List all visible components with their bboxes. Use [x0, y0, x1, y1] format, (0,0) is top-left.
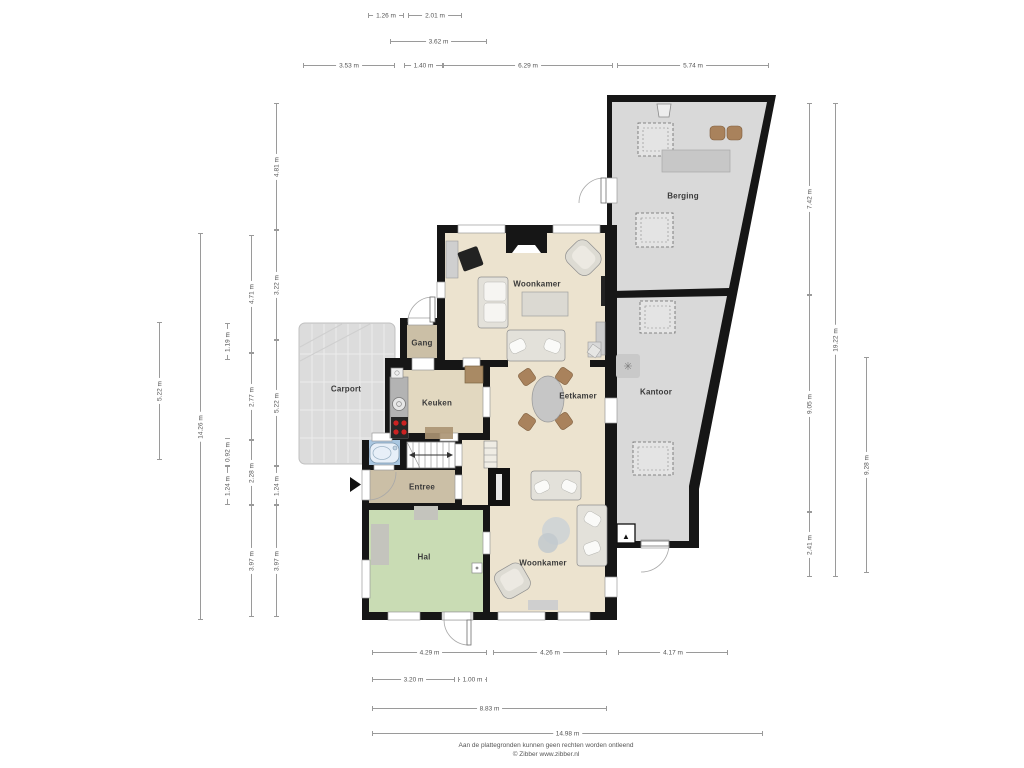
room-label-eetkamer: Eetkamer [559, 392, 597, 401]
dimension-label: 3.53 m [336, 62, 362, 69]
door-leaf [430, 297, 435, 322]
dimension-line: 1.19 m [227, 323, 228, 360]
room-label-carport: Carport [331, 385, 361, 394]
svg-text:✳: ✳ [623, 361, 632, 373]
disclaimer-footer: Aan de plattegronden kunnen geen rechten… [290, 741, 802, 759]
dimension-label: 14.98 m [553, 730, 583, 737]
staircase [407, 442, 455, 468]
dimension-label: 2.01 m [422, 12, 448, 19]
room-label-woonkamer: Woonkamer [513, 280, 560, 289]
door-gap [408, 318, 433, 325]
dimension-label: 5.22 m [273, 390, 280, 416]
dimension-line: 0.92 m [227, 438, 228, 466]
dimension-line: 3.20 m [372, 679, 455, 680]
dimension-label: 3.97 m [248, 548, 255, 574]
dimension-line: 2.77 m [251, 353, 252, 440]
door-gap [362, 470, 370, 500]
window [437, 282, 445, 298]
stove-icon [391, 417, 408, 438]
dimension-line: 2.41 m [809, 512, 810, 577]
dimension-line: 1.40 m [404, 65, 443, 66]
opening [483, 387, 490, 417]
dimension-line: 19.22 m [835, 103, 836, 577]
room-label-gang: Gang [411, 339, 432, 348]
dimension-label: 7.42 m [806, 186, 813, 212]
dimension-label: 5.74 m [680, 62, 706, 69]
dimension-label: 2.41 m [806, 532, 813, 558]
room-label-entree: Entree [409, 483, 435, 492]
dimension-line: 14.98 m [372, 733, 763, 734]
appliance-icon [391, 368, 403, 378]
dimension-label: 6.29 m [515, 62, 541, 69]
dimension-line: 6.29 m [443, 65, 613, 66]
dimension-line: 7.42 m [809, 103, 810, 295]
dimension-line: 4.81 m [276, 103, 277, 230]
dimension-label: 1.00 m [460, 676, 486, 683]
dimension-label: 8.83 m [477, 705, 503, 712]
dimension-label: 19.22 m [832, 325, 839, 355]
dimension-line: 8.83 m [372, 708, 607, 709]
dimension-line: 3.22 m [276, 230, 277, 340]
bucket-icon [657, 104, 671, 117]
opening [412, 358, 434, 370]
opening [374, 465, 394, 470]
dimension-label: 14.26 m [197, 412, 204, 442]
window [553, 225, 600, 233]
window [362, 560, 370, 598]
opening [455, 475, 462, 499]
dimension-line: 1.24 m [276, 466, 277, 505]
door-leaf [601, 178, 606, 203]
dimension-label: 4.26 m [537, 649, 563, 656]
floorplan-page: ✳ ▲ BergingWoonkamerGangCarportKeukenEet… [0, 0, 1024, 768]
window [605, 577, 617, 597]
dimension-line: 2.28 m [251, 440, 252, 505]
dimension-line: 5.74 m [617, 65, 769, 66]
room-label-berging: Berging [667, 192, 699, 201]
room-label-kantoor: Kantoor [640, 388, 672, 397]
dimension-label: 0.92 m [224, 439, 231, 465]
dimension-label: 1.19 m [224, 329, 231, 355]
dimension-label: 9.28 m [863, 452, 870, 478]
door-arc [444, 620, 469, 645]
door-leaf [641, 541, 669, 546]
credit-line: © Zibber www.zibber.nl [290, 750, 802, 759]
dimension-line: 3.62 m [390, 41, 487, 42]
dimension-line: 4.71 m [251, 235, 252, 353]
dimension-line: 4.29 m [372, 652, 487, 653]
sink-icon [393, 398, 406, 411]
room-label-hal: Hal [417, 553, 430, 562]
kitchen-mat [425, 427, 453, 439]
dimension-label: 2.28 m [248, 460, 255, 486]
window [605, 398, 617, 423]
dimension-label: 5.22 m [156, 378, 163, 404]
disclaimer-line: Aan de plattegronden kunnen geen rechten… [290, 741, 802, 750]
bathtub [370, 443, 399, 463]
dimension-line: 3.53 m [303, 65, 395, 66]
dimension-line: 5.22 m [276, 340, 277, 466]
dimension-label: 4.71 m [248, 281, 255, 307]
dimension-line: 14.26 m [200, 233, 201, 620]
dimension-label: 3.22 m [273, 272, 280, 298]
dimension-line: 1.24 m [227, 466, 228, 505]
dimension-label: 4.17 m [660, 649, 686, 656]
door-arc [579, 178, 604, 203]
dimension-label: 3.62 m [426, 38, 452, 45]
dimension-line: 1.00 m [458, 679, 487, 680]
dimension-label: 1.26 m [373, 12, 399, 19]
window [558, 612, 590, 620]
dimension-label: 3.20 m [401, 676, 427, 683]
door-gap [444, 612, 471, 620]
entrance-arrow-icon [350, 477, 361, 492]
dimension-line: 3.97 m [251, 505, 252, 617]
dimension-label: 4.29 m [417, 649, 443, 656]
dimension-label: 1.40 m [411, 62, 437, 69]
dimension-label: 3.97 m [273, 548, 280, 574]
room-label-woonkamer: Woonkamer [519, 559, 566, 568]
window [388, 612, 420, 620]
dimension-line: 1.26 m [368, 15, 404, 16]
dimension-label: 2.77 m [248, 384, 255, 410]
dimension-line: 9.05 m [809, 295, 810, 512]
window [498, 612, 545, 620]
dimension-label: 1.24 m [224, 473, 231, 499]
window [458, 225, 505, 233]
room-label-keuken: Keuken [422, 399, 452, 408]
dimension-label: 1.24 m [273, 473, 280, 499]
dimension-label: 4.81 m [273, 154, 280, 180]
dimension-line: 2.01 m [408, 15, 462, 16]
svg-text:▲: ▲ [622, 532, 630, 541]
dimension-line: 9.28 m [866, 357, 867, 573]
window [372, 433, 392, 441]
dimension-line: 3.97 m [276, 505, 277, 617]
dimension-line: 4.17 m [618, 652, 728, 653]
dimension-label: 9.05 m [806, 391, 813, 417]
tv-icon [601, 276, 605, 306]
opening [463, 358, 480, 367]
window [483, 532, 490, 554]
door-leaf [467, 620, 471, 645]
door-gap [605, 178, 617, 203]
dimension-line: 5.22 m [159, 322, 160, 460]
opening [455, 444, 462, 466]
tall-cabinet [465, 366, 483, 383]
dimension-line: 4.26 m [493, 652, 607, 653]
